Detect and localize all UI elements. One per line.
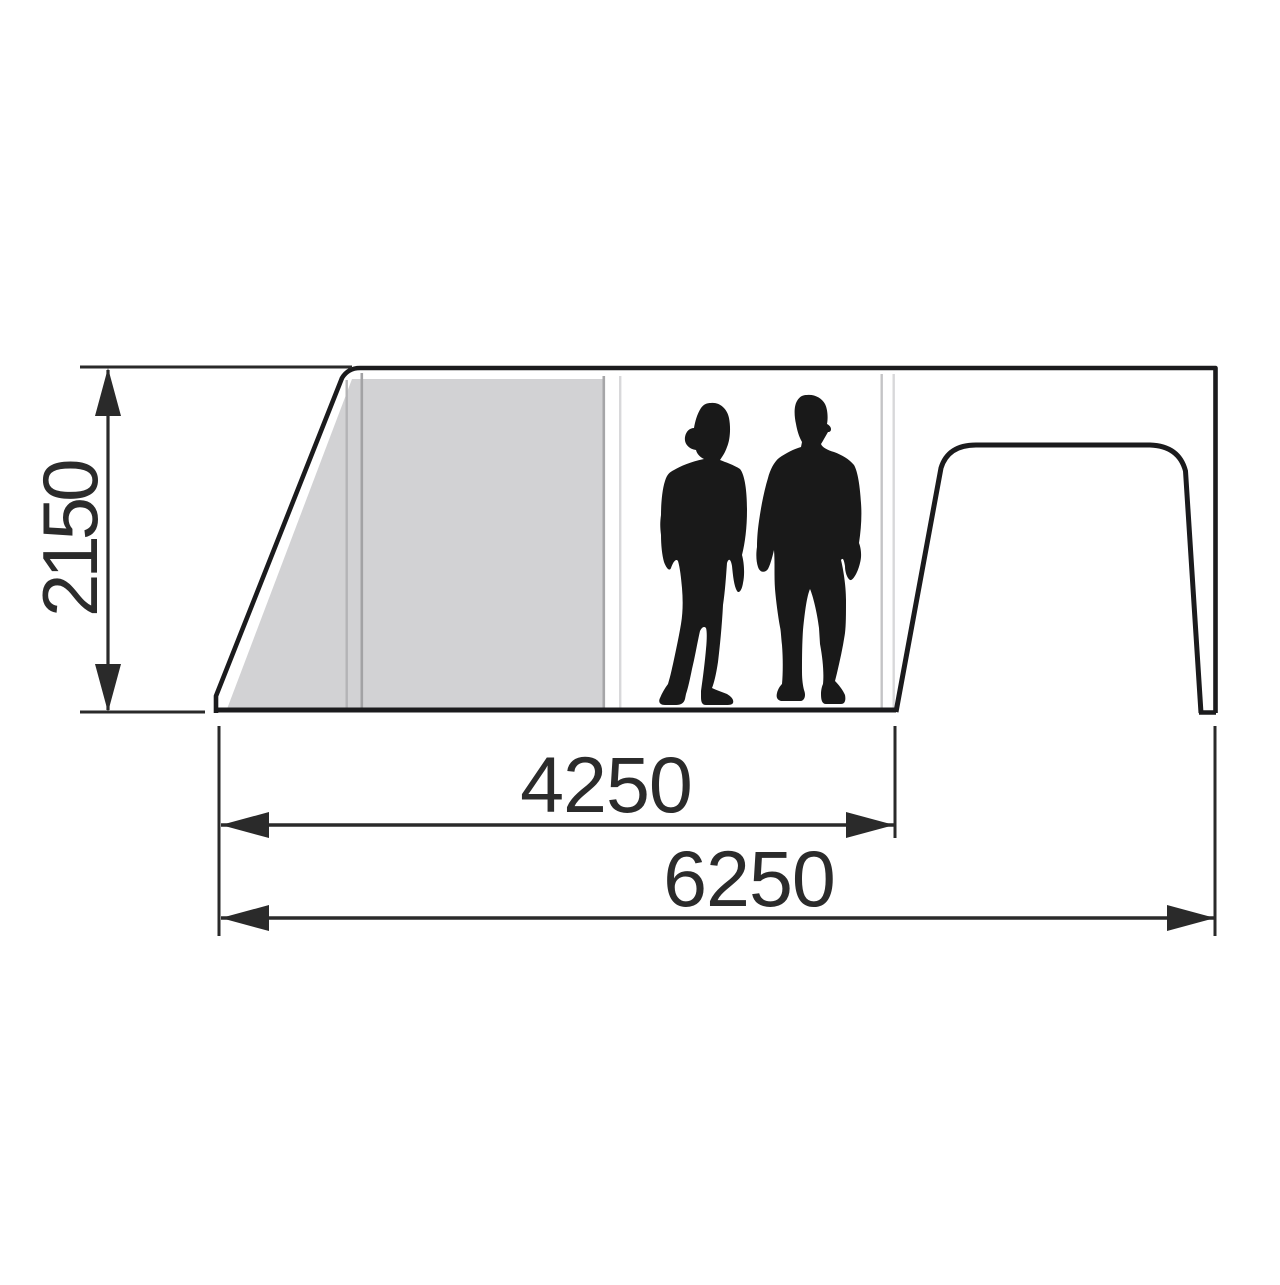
svg-text:4250: 4250 [520, 740, 692, 829]
svg-text:6250: 6250 [663, 834, 835, 923]
svg-text:2150: 2150 [26, 461, 114, 617]
